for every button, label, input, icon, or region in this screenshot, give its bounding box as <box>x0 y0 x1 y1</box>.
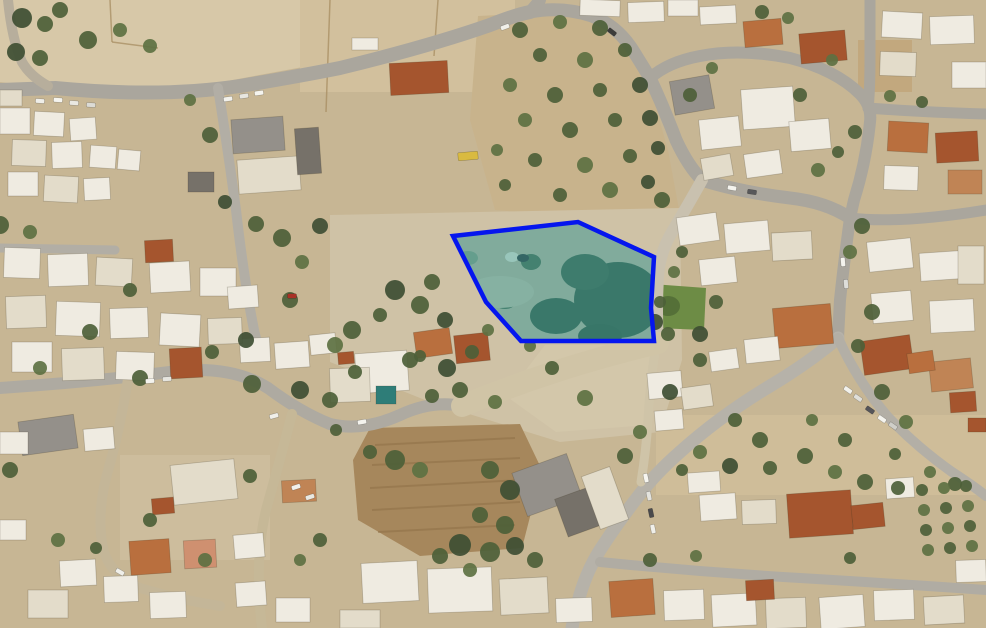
tree <box>843 245 857 259</box>
tree <box>547 87 563 103</box>
tree <box>826 54 838 66</box>
vehicle <box>53 97 62 102</box>
tree <box>916 484 928 496</box>
building-roof <box>8 172 38 196</box>
building-roof <box>880 51 917 76</box>
building-roof <box>949 391 976 413</box>
tree <box>797 448 813 464</box>
tree <box>633 425 647 439</box>
building-roof <box>743 18 783 47</box>
tree <box>874 384 890 400</box>
building-roof <box>765 597 806 628</box>
tree <box>291 381 309 399</box>
building-roof <box>958 246 984 284</box>
building-roof <box>43 175 78 203</box>
tree <box>313 533 327 547</box>
tree <box>506 537 524 555</box>
tree <box>488 395 502 409</box>
building-roof <box>887 121 929 153</box>
tree <box>942 522 954 534</box>
building-roof <box>237 156 301 194</box>
building-roof <box>907 350 936 373</box>
tree <box>143 513 157 527</box>
tree <box>642 110 658 126</box>
building-roof <box>340 610 380 628</box>
vehicle <box>840 257 845 266</box>
building-roof <box>952 62 986 88</box>
tree <box>854 218 870 234</box>
tree <box>518 113 532 127</box>
building-roof <box>235 581 267 607</box>
building-roof <box>956 559 986 582</box>
tree <box>651 141 665 155</box>
tree <box>668 266 680 278</box>
tree <box>722 458 738 474</box>
tree <box>243 469 257 483</box>
building-roof <box>276 598 310 622</box>
tree <box>205 345 219 359</box>
tree <box>248 216 264 232</box>
building-roof <box>867 238 914 272</box>
building-roof <box>787 490 854 538</box>
building-roof <box>663 589 704 620</box>
tree <box>2 462 18 478</box>
building-roof <box>556 597 593 622</box>
tree <box>82 324 98 340</box>
building-roof <box>699 256 738 286</box>
building-roof <box>144 239 173 262</box>
building-roof <box>149 261 191 293</box>
building-roof <box>499 577 549 615</box>
building-roof <box>352 38 378 50</box>
tree <box>654 192 670 208</box>
building-roof <box>628 1 665 22</box>
building-roof <box>919 251 961 282</box>
vehicle <box>254 90 264 96</box>
vehicle <box>162 376 171 381</box>
tree <box>577 52 593 68</box>
tree <box>37 16 53 32</box>
building-roof <box>654 409 684 431</box>
building-roof <box>274 341 310 369</box>
tree <box>463 563 477 577</box>
tree <box>728 413 742 427</box>
tree <box>123 283 137 297</box>
tree <box>472 507 488 523</box>
building-roof <box>389 61 449 96</box>
building-roof <box>580 0 621 17</box>
tree <box>683 88 697 102</box>
tree <box>755 5 769 19</box>
tree <box>438 359 456 377</box>
building-roof <box>709 348 740 372</box>
tree <box>385 450 405 470</box>
building-roof <box>169 347 203 379</box>
tree <box>295 255 309 269</box>
building-roof <box>700 154 733 181</box>
tree <box>844 552 856 564</box>
tree <box>916 96 928 108</box>
tree <box>437 312 453 328</box>
tree <box>924 466 936 478</box>
building-roof <box>129 539 171 576</box>
vehicle <box>843 279 848 288</box>
building-roof <box>0 108 30 134</box>
vehicle <box>288 294 297 299</box>
building-roof <box>361 561 419 604</box>
vehicle <box>145 378 154 383</box>
tree <box>690 550 702 562</box>
building-roof <box>12 139 47 166</box>
tree <box>676 464 688 476</box>
tree <box>491 144 503 156</box>
building-roof <box>208 317 243 344</box>
building-roof <box>929 358 974 392</box>
building-roof <box>699 493 737 521</box>
building-roof <box>930 15 975 45</box>
tree <box>51 533 65 547</box>
tree <box>602 182 618 198</box>
building-roof <box>83 427 115 452</box>
tree <box>90 542 102 554</box>
satellite-image <box>0 0 986 628</box>
tree <box>618 43 632 57</box>
building-roof <box>799 30 847 64</box>
tree <box>481 461 499 479</box>
tree <box>496 516 514 534</box>
tree <box>482 324 494 336</box>
building-roof <box>745 579 774 600</box>
building-roof <box>294 127 321 175</box>
tree <box>851 339 865 353</box>
tree <box>838 433 852 447</box>
satellite-canvas <box>0 0 986 628</box>
building-roof <box>33 111 64 137</box>
building-roof <box>104 575 139 602</box>
tree <box>202 127 218 143</box>
tree <box>962 500 974 512</box>
building-roof <box>668 0 698 16</box>
tree <box>891 481 905 495</box>
building-roof <box>233 533 265 560</box>
building-roof <box>117 149 141 171</box>
tree <box>23 225 37 239</box>
tree <box>243 375 261 393</box>
tree <box>806 414 818 426</box>
tree <box>641 175 655 189</box>
building-roof <box>69 117 96 141</box>
building-roof <box>52 141 83 168</box>
tree <box>294 554 306 566</box>
building-roof <box>699 116 742 150</box>
building-roof <box>681 384 714 410</box>
tree <box>52 2 68 18</box>
building-roof <box>676 212 720 245</box>
building-roof <box>159 313 201 347</box>
building-roof <box>427 567 492 613</box>
tree <box>113 23 127 37</box>
building-roof <box>873 589 914 620</box>
tree <box>512 22 528 38</box>
tree <box>593 83 607 97</box>
vehicle <box>86 102 95 107</box>
tree <box>343 321 361 339</box>
tree <box>79 31 97 49</box>
tree <box>411 296 429 314</box>
tree <box>632 77 648 93</box>
building-roof <box>151 497 174 515</box>
building-roof <box>150 591 187 618</box>
tree <box>238 332 254 348</box>
tree <box>944 542 956 554</box>
tree <box>832 146 844 158</box>
tree <box>676 246 688 258</box>
tree <box>562 122 578 138</box>
tree <box>889 448 901 460</box>
building-roof <box>281 479 316 503</box>
tree <box>661 327 675 341</box>
tree <box>330 424 342 436</box>
building-roof <box>819 595 865 628</box>
tree <box>782 12 794 24</box>
building-roof <box>109 307 148 338</box>
building-roof <box>884 165 919 190</box>
tree <box>763 461 777 475</box>
tree <box>545 361 559 375</box>
tree <box>617 448 633 464</box>
building-roof <box>338 351 355 364</box>
building-roof <box>935 131 979 163</box>
tree <box>706 62 718 74</box>
building-roof <box>89 145 116 169</box>
building-roof <box>0 520 26 540</box>
building-roof <box>948 170 982 194</box>
vehicle <box>69 100 78 105</box>
building-roof <box>47 253 88 286</box>
building-roof <box>789 118 831 151</box>
building-roof <box>376 386 396 404</box>
tree <box>33 361 47 375</box>
building-roof <box>59 559 96 587</box>
building-roof <box>170 459 238 505</box>
building-roof <box>609 579 655 618</box>
tree <box>12 8 32 28</box>
building-roof <box>61 347 104 380</box>
building-roof <box>28 590 68 618</box>
tree <box>899 415 913 429</box>
vehicle <box>239 93 249 99</box>
building-roof <box>227 285 258 309</box>
tree <box>793 88 807 102</box>
tree <box>577 390 593 406</box>
building-roof <box>0 432 28 454</box>
building-roof <box>3 247 40 278</box>
tree <box>884 90 896 102</box>
tree <box>662 384 678 400</box>
tree <box>500 480 520 500</box>
tree <box>480 542 500 562</box>
tree <box>449 534 471 556</box>
tree <box>752 432 768 448</box>
building-roof <box>744 336 780 363</box>
tree <box>32 50 48 66</box>
tree <box>132 370 148 386</box>
building-roof <box>741 86 796 130</box>
tree <box>503 78 517 92</box>
building-roof <box>0 90 22 106</box>
building-roof <box>968 418 986 432</box>
vehicle <box>223 96 233 102</box>
tree <box>327 337 343 353</box>
tree <box>533 48 547 62</box>
tree <box>643 553 657 567</box>
tree <box>654 296 666 308</box>
building-roof <box>724 220 770 254</box>
tree <box>425 389 439 403</box>
tree <box>363 445 377 459</box>
building-roof <box>742 499 777 524</box>
tree <box>828 465 842 479</box>
building-roof <box>851 502 885 529</box>
vehicle <box>458 151 479 161</box>
tree <box>465 345 479 359</box>
tree <box>608 113 622 127</box>
tree <box>7 43 25 61</box>
tree <box>528 153 542 167</box>
tree <box>373 308 387 322</box>
tree <box>553 15 567 29</box>
tree <box>592 20 608 36</box>
tree <box>184 94 196 106</box>
building-roof <box>83 177 110 200</box>
tree <box>348 365 362 379</box>
tree <box>864 304 880 320</box>
tree <box>452 382 468 398</box>
building-roof <box>95 257 132 287</box>
tree <box>218 195 232 209</box>
building-roof <box>860 335 914 376</box>
tree <box>938 482 950 494</box>
tree <box>920 524 932 536</box>
building-roof <box>771 231 812 261</box>
vehicle <box>747 189 757 195</box>
building-roof <box>881 11 922 39</box>
tree <box>918 504 930 516</box>
building-roof <box>5 295 46 328</box>
tree <box>198 553 212 567</box>
tree <box>412 462 428 478</box>
tree <box>143 39 157 53</box>
tree <box>848 125 862 139</box>
tree <box>414 350 426 362</box>
tree <box>312 218 328 234</box>
tree <box>964 520 976 532</box>
tree <box>940 502 952 514</box>
tree <box>857 474 873 490</box>
tree <box>424 274 440 290</box>
tree <box>966 540 978 552</box>
tree <box>553 188 567 202</box>
tree <box>693 445 707 459</box>
tree <box>385 280 405 300</box>
tree <box>432 548 448 564</box>
tree <box>692 326 708 342</box>
tree <box>527 552 543 568</box>
tree <box>948 477 962 491</box>
tree <box>623 149 637 163</box>
tree <box>960 480 972 492</box>
building-roof <box>744 150 783 179</box>
building-roof <box>231 116 285 154</box>
building-roof <box>923 595 964 625</box>
tree <box>273 229 291 247</box>
tree <box>499 179 511 191</box>
tree <box>709 295 723 309</box>
building-roof <box>700 5 737 25</box>
vehicle <box>35 98 44 103</box>
tree <box>577 157 593 173</box>
tree <box>322 392 338 408</box>
tree <box>693 353 707 367</box>
tree <box>922 544 934 556</box>
tree <box>811 163 825 177</box>
building-roof <box>929 299 975 333</box>
building-roof <box>687 471 720 493</box>
building-roof <box>772 304 833 349</box>
building-roof <box>188 172 214 192</box>
